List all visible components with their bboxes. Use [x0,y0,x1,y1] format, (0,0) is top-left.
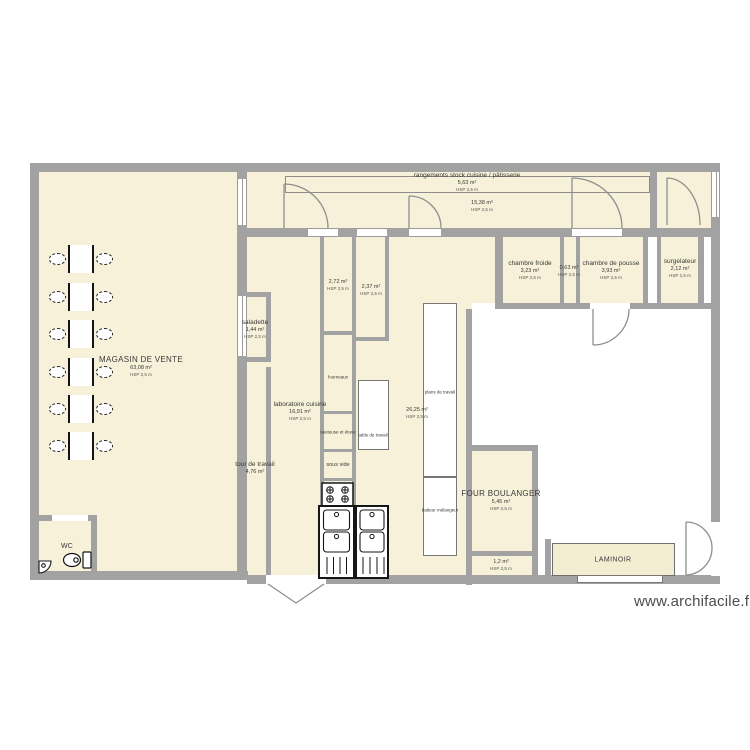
room-label-couloir: 15,38 m² HSP 2,5 m [471,200,493,213]
door-arc[interactable] [284,184,328,228]
equipment-label-fourneaux: fourneaux [328,375,348,380]
sink-icon[interactable] [319,506,354,578]
room-label-cuisine: 26,25 m² HSP 2,5 m [406,407,428,420]
room-label-sas: 0,63 m² HSP 2,5 m [558,265,580,278]
equipment-label-batteur-melangeur: batteur mélangeur [422,508,459,513]
room-label-reserve-237: 2,37 m² HSP 2,5 m [360,284,382,297]
equipment-label-sauteuse-etuve: sauteuse et étuve [320,430,356,435]
door-arc[interactable] [572,178,622,228]
room-label-tour-de-travail: tour de travail 4,76 m² [235,461,274,476]
sink-icon[interactable] [356,506,388,578]
double-door[interactable] [686,522,712,575]
equipment-label-sous-vide: sous vide [326,462,349,468]
double-door[interactable] [268,584,324,603]
room-label-saladette: saladette 1,44 m² HSP 2,5 m [242,319,268,340]
room-label-chambre-pousse: chambre de pousse 3,93 m² HSP 2,5 m [582,260,639,281]
room-label-magasin: MAGASIN DE VENTE 63,08 m² HSP 2,5 m [99,355,183,378]
floor-plan: MAGASIN DE VENTE 63,08 m² HSP 2,5 m rang… [0,0,750,750]
door-arc[interactable] [409,196,441,228]
stove-icon[interactable] [322,483,353,506]
room-label-four-boulanger: FOUR BOULANGER 5,45 m² HSP 2,5 m [461,489,540,512]
watermark: www.archifacile.fr [634,593,750,610]
room-label-reserve-272: 2,72 m² HSP 2,5 m [327,279,349,292]
room-label-petit-local: 1,2 m² HSP 2,5 m [490,559,512,572]
door-arc[interactable] [667,178,700,225]
room-label-wc: WC [61,543,73,552]
room-label-surgelateur: surgelateur 2,12 m² HSP 2,5 m [664,258,697,279]
room-label-rangements: rangements stock cuisine / pâtisserie 5,… [414,172,521,193]
equipment-label-laminoir: LAMINOIR [594,557,631,564]
equipment-label-table-de-travail: table de travail [358,433,387,438]
equipment-label-plans-de-travail: plans de travail [425,390,455,395]
room-label-laboratoire: laboratoire cuisine 16,91 m² HSP 2,5 m [274,401,327,422]
room-label-chambre-froide: chambre froide 3,23 m² HSP 2,5 m [508,260,551,281]
corner-sink-icon[interactable] [39,561,51,573]
door-arc[interactable] [593,309,629,345]
toilet-icon[interactable] [64,552,92,568]
